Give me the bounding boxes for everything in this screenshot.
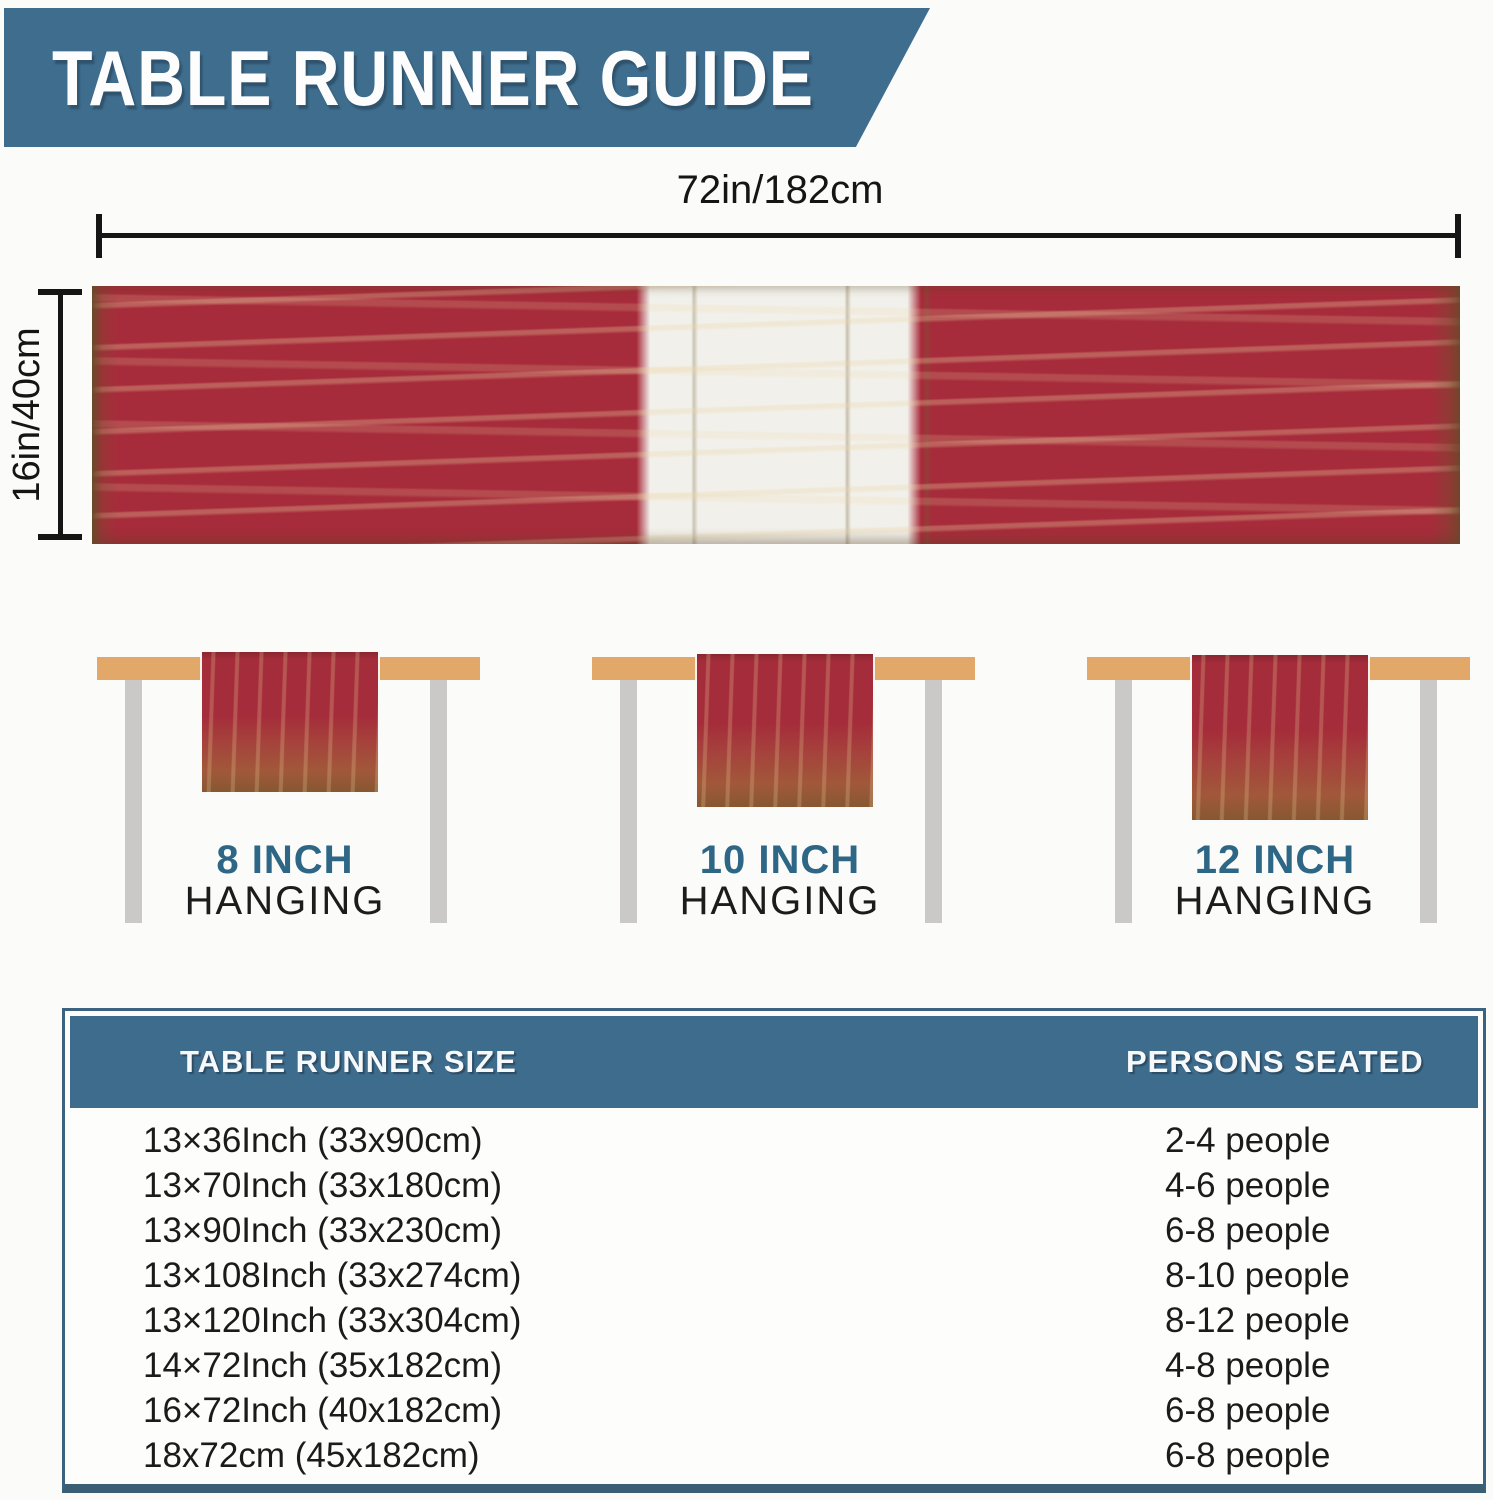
persons-cell: 8-12 people	[1165, 1298, 1350, 1343]
table-runner-product-image	[92, 286, 1460, 544]
runner-size-cell: 18x72cm (45x182cm)	[143, 1433, 480, 1478]
hanging-runner	[1192, 655, 1368, 820]
runner-size-cell: 13×70Inch (33x180cm)	[143, 1163, 502, 1208]
persons-cell: 4-8 people	[1165, 1343, 1330, 1388]
height-dimension-line	[58, 289, 63, 540]
size-table-body: 13×36Inch (33x90cm) 2-4 people 13×70Inch…	[65, 1113, 1483, 1484]
table-row: 13×120Inch (33x304cm) 8-12 people	[65, 1298, 1483, 1343]
runner-size-cell: 13×108Inch (33x274cm)	[143, 1253, 521, 1298]
hanging-label: HANGING	[1075, 879, 1475, 924]
size-table: TABLE RUNNER SIZE PERSONS SEATED 13×36In…	[62, 1008, 1486, 1493]
persons-cell: 6-8 people	[1165, 1433, 1330, 1478]
persons-cell: 2-4 people	[1165, 1118, 1330, 1163]
width-dimension-line	[96, 233, 1461, 238]
runner-size-cell: 16×72Inch (40x182cm)	[143, 1388, 502, 1433]
column-header-persons: PERSONS SEATED	[1126, 1016, 1424, 1108]
hanging-figure-10-inch: 10 INCH HANGING	[580, 645, 980, 980]
table-runner-guide-infographic: TABLE RUNNER GUIDE 72in/182cm 16in/40cm …	[0, 0, 1493, 1500]
page-title: TABLE RUNNER GUIDE	[52, 8, 814, 147]
dimension-tick-top	[38, 289, 82, 295]
height-dimension-label: 16in/40cm	[6, 285, 46, 545]
table-row: 16×72Inch (40x182cm) 6-8 people	[65, 1388, 1483, 1433]
runner-size-cell: 13×90Inch (33x230cm)	[143, 1208, 502, 1253]
hang-length-label: 10 INCH	[580, 838, 980, 883]
dimension-tick-bottom	[38, 534, 82, 540]
hanging-runner	[697, 654, 873, 807]
width-dimension-label: 72in/182cm	[620, 168, 940, 213]
table-row: 13×36Inch (33x90cm) 2-4 people	[65, 1118, 1483, 1163]
hanging-label: HANGING	[85, 879, 485, 924]
table-row: 13×90Inch (33x230cm) 6-8 people	[65, 1208, 1483, 1253]
persons-cell: 8-10 people	[1165, 1253, 1350, 1298]
table-row: 18x72cm (45x182cm) 6-8 people	[65, 1433, 1483, 1478]
dimension-tick-right	[1455, 214, 1461, 258]
hang-length-label: 8 INCH	[85, 838, 485, 883]
table-row: 13×70Inch (33x180cm) 4-6 people	[65, 1163, 1483, 1208]
persons-cell: 6-8 people	[1165, 1208, 1330, 1253]
table-row: 14×72Inch (35x182cm) 4-8 people	[65, 1343, 1483, 1388]
runner-size-cell: 13×120Inch (33x304cm)	[143, 1298, 521, 1343]
size-table-header: TABLE RUNNER SIZE PERSONS SEATED	[70, 1016, 1478, 1108]
header-banner: TABLE RUNNER GUIDE	[4, 8, 930, 147]
column-header-size: TABLE RUNNER SIZE	[180, 1016, 517, 1108]
runner-size-cell: 13×36Inch (33x90cm)	[143, 1118, 483, 1163]
runner-size-cell: 14×72Inch (35x182cm)	[143, 1343, 502, 1388]
hanging-figure-12-inch: 12 INCH HANGING	[1075, 645, 1475, 980]
hanging-runner	[202, 652, 378, 792]
table-row: 13×108Inch (33x274cm) 8-10 people	[65, 1253, 1483, 1298]
hang-length-label: 12 INCH	[1075, 838, 1475, 883]
persons-cell: 6-8 people	[1165, 1388, 1330, 1433]
persons-cell: 4-6 people	[1165, 1163, 1330, 1208]
hanging-figure-8-inch: 8 INCH HANGING	[85, 645, 485, 980]
dimension-tick-left	[96, 214, 102, 258]
hanging-label: HANGING	[580, 879, 980, 924]
